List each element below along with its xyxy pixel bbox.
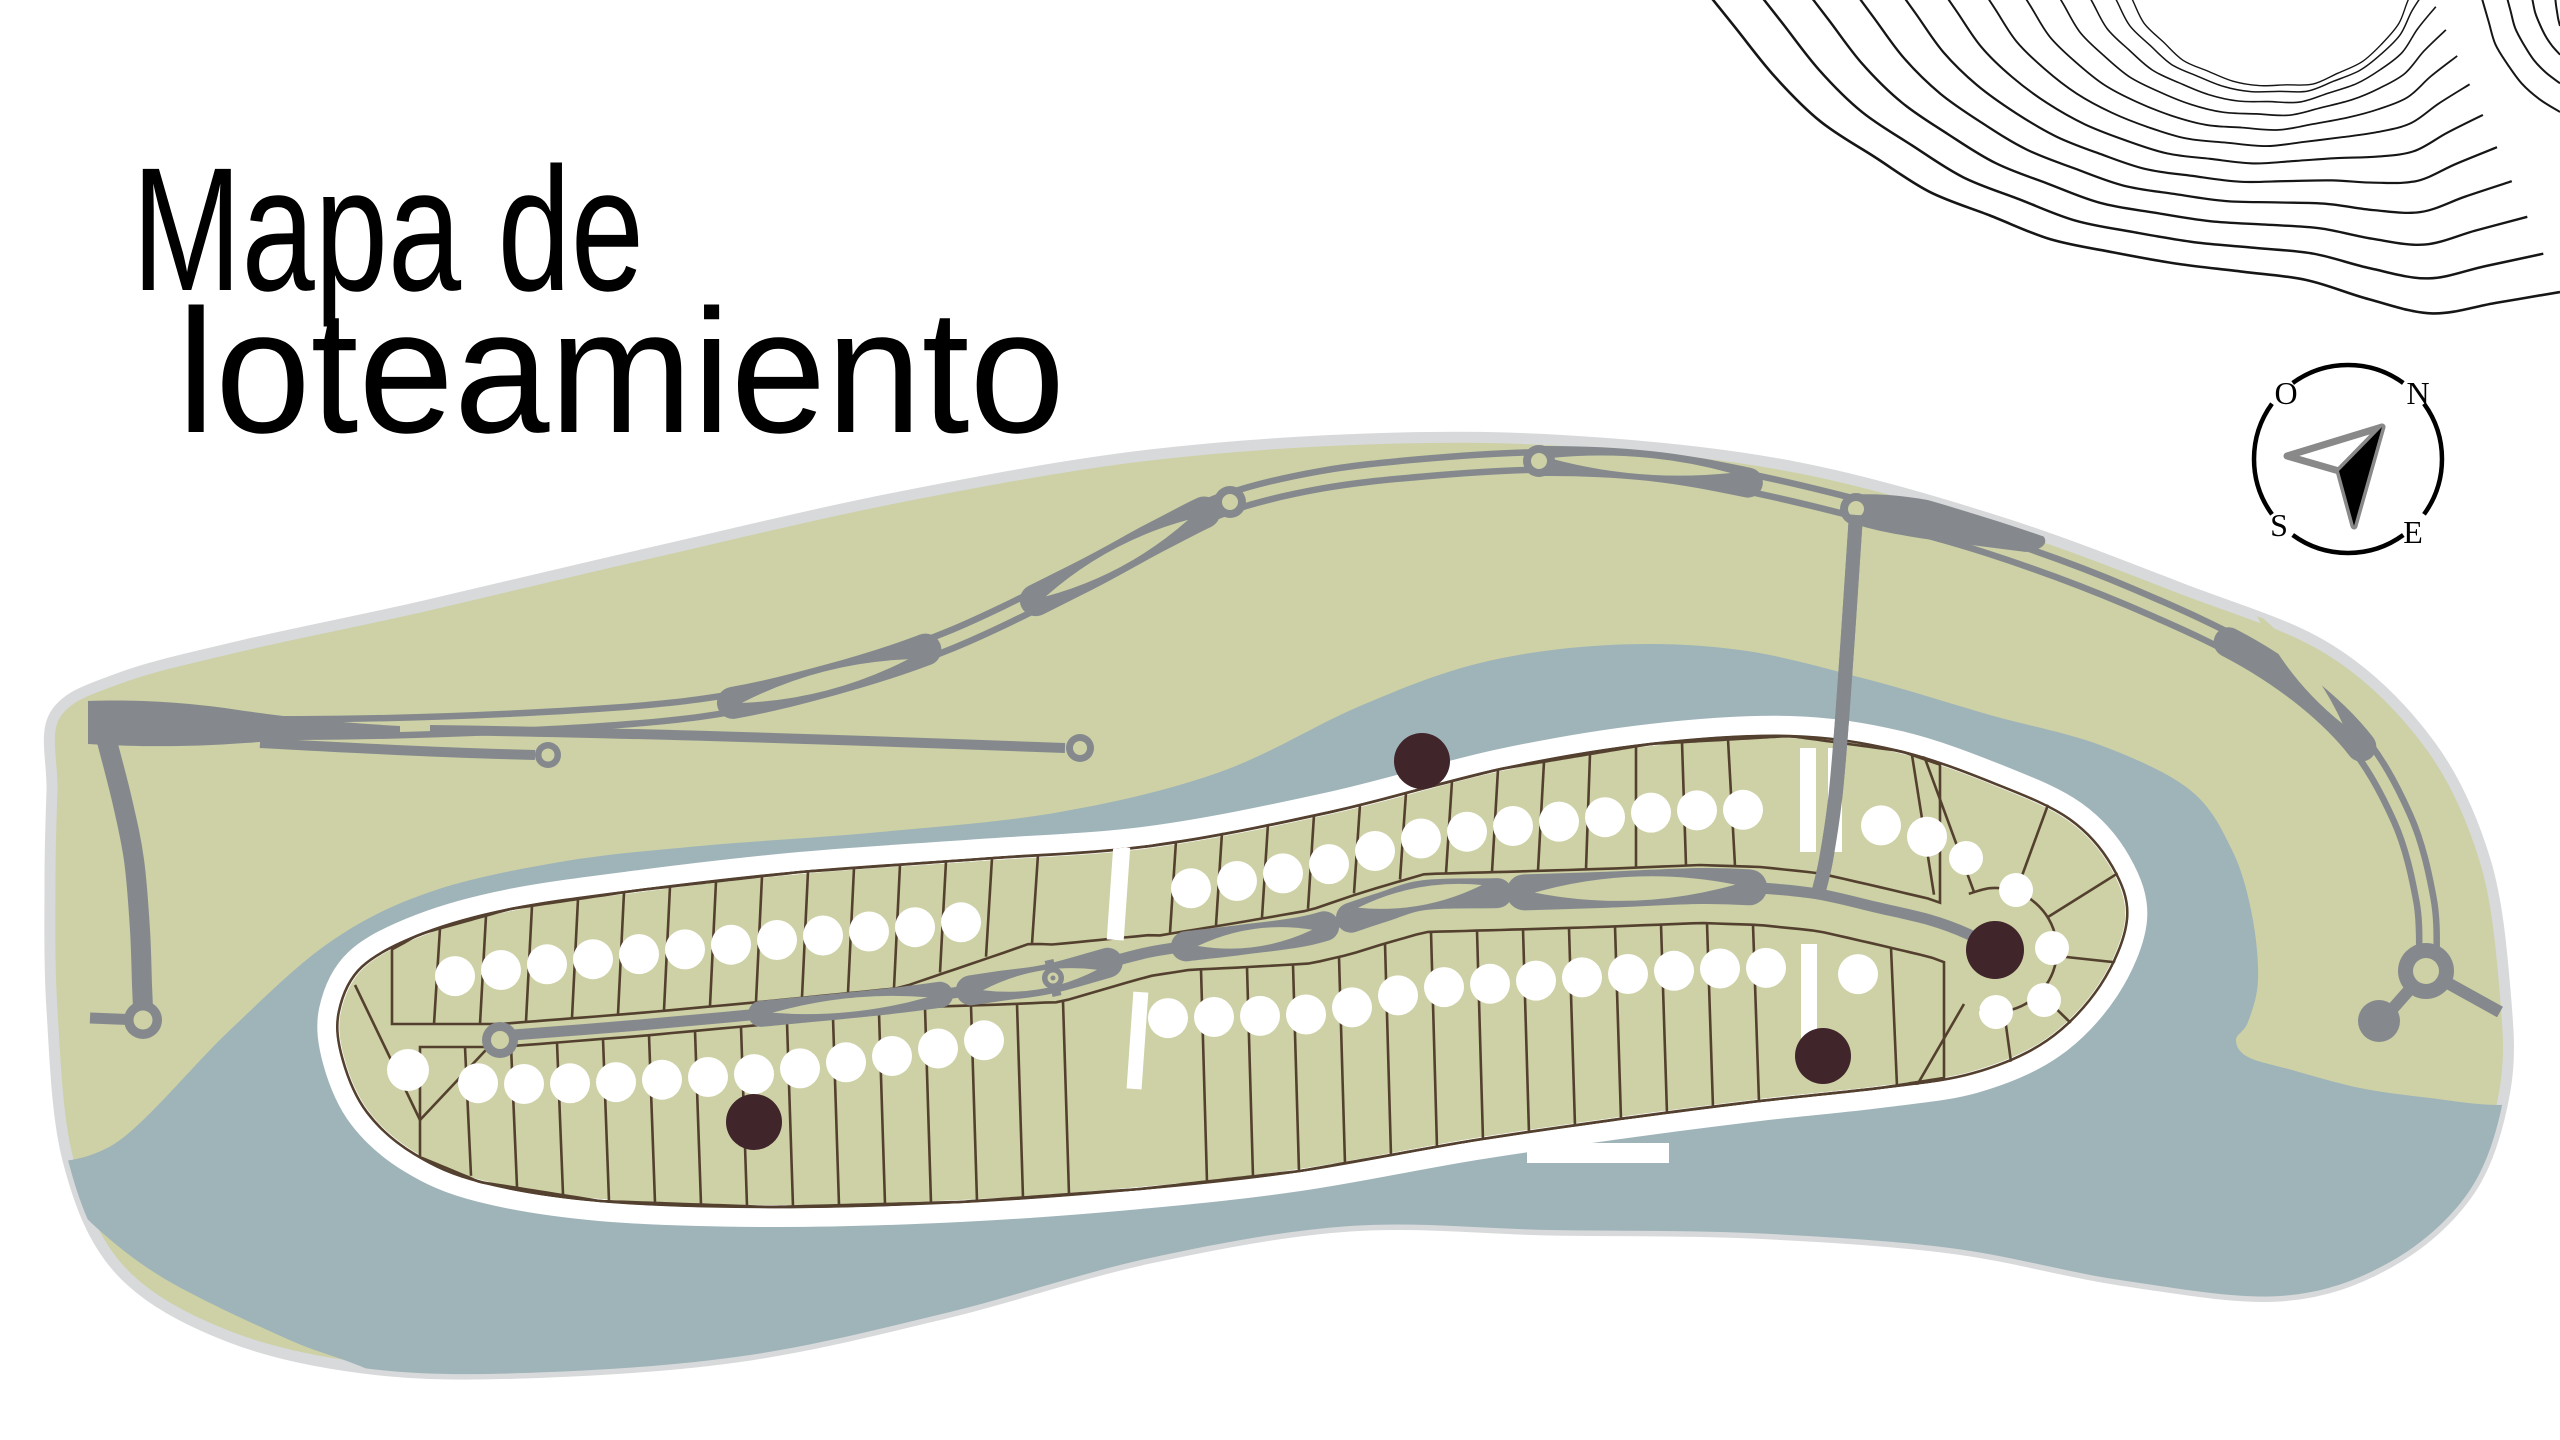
- svg-text:S: S: [2270, 507, 2288, 543]
- svg-text:loteamiento: loteamiento: [177, 274, 1065, 470]
- svg-text:N: N: [2406, 375, 2429, 411]
- svg-text:O: O: [2274, 375, 2297, 411]
- svg-text:E: E: [2403, 514, 2423, 550]
